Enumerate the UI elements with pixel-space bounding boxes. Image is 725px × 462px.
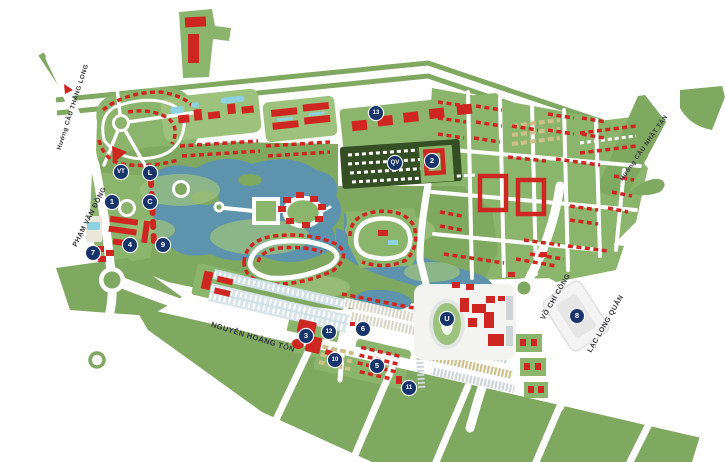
marker-1[interactable]: 1 xyxy=(105,195,119,209)
marker-7[interactable]: 7 xyxy=(86,246,100,260)
northeast-corner-wedge xyxy=(680,86,725,130)
marker-12[interactable]: 12 xyxy=(322,325,336,339)
flag-6-icon xyxy=(350,322,355,326)
marker-u[interactable]: U xyxy=(440,312,454,326)
plaza-square xyxy=(254,199,278,223)
marker-9[interactable]: 9 xyxy=(156,238,170,252)
marker-13[interactable]: 13 xyxy=(369,106,383,120)
marker-qv[interactable]: QV xyxy=(388,156,402,170)
marker-2[interactable]: 2 xyxy=(425,154,439,168)
marker-vt[interactable]: VT xyxy=(114,165,128,179)
map-canvas xyxy=(0,0,725,462)
marker-l[interactable]: L xyxy=(143,166,157,180)
marker-5[interactable]: 5 xyxy=(370,359,384,373)
marker-6[interactable]: 6 xyxy=(356,322,370,336)
masterplan-map: Hướng CẦU THĂNG LONGPHẠM VĂN ĐỒNGNGUYỄN … xyxy=(0,0,725,462)
lake-islet xyxy=(238,174,262,186)
marker-c[interactable]: C xyxy=(143,195,157,209)
marker-3[interactable]: 3 xyxy=(299,329,313,343)
marker-11[interactable]: 11 xyxy=(402,381,416,395)
marker-4[interactable]: 4 xyxy=(123,238,137,252)
marker-10[interactable]: 10 xyxy=(328,353,342,367)
marker-8[interactable]: 8 xyxy=(570,309,584,323)
